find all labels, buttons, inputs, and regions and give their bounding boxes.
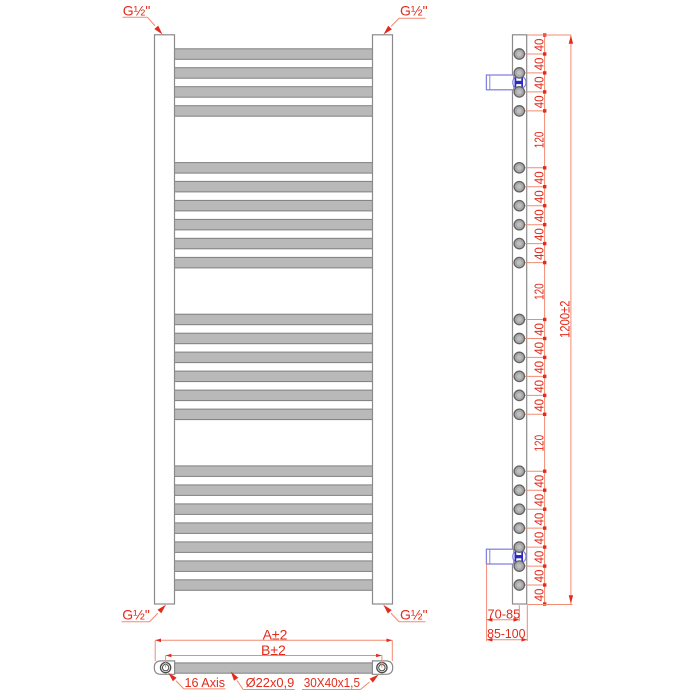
svg-text:120: 120 (532, 132, 547, 149)
svg-text:G½": G½" (122, 607, 150, 623)
svg-text:40: 40 (532, 323, 547, 336)
svg-text:40: 40 (532, 342, 547, 355)
svg-text:40: 40 (532, 190, 547, 203)
svg-text:40: 40 (532, 171, 547, 184)
svg-text:Ø22x0,9: Ø22x0,9 (246, 675, 295, 690)
svg-text:40: 40 (532, 247, 547, 260)
svg-text:40: 40 (532, 570, 547, 583)
svg-text:85-100: 85-100 (487, 626, 525, 641)
svg-text:40: 40 (532, 209, 547, 222)
svg-text:16 Axis: 16 Axis (185, 675, 226, 690)
svg-text:40: 40 (532, 228, 547, 241)
svg-text:B±2: B±2 (261, 642, 286, 658)
svg-text:40: 40 (532, 77, 547, 90)
svg-text:40: 40 (532, 39, 547, 52)
svg-text:40: 40 (532, 96, 547, 109)
svg-text:40: 40 (532, 475, 547, 488)
svg-text:40: 40 (532, 380, 547, 393)
svg-text:40: 40 (532, 399, 547, 412)
svg-text:120: 120 (532, 283, 547, 300)
svg-text:A±2: A±2 (263, 627, 288, 643)
svg-text:1200±2: 1200±2 (558, 301, 573, 339)
svg-text:40: 40 (532, 513, 547, 526)
svg-text:G½": G½" (400, 607, 428, 623)
svg-text:70-85: 70-85 (488, 606, 521, 621)
svg-text:120: 120 (532, 435, 547, 452)
svg-text:40: 40 (532, 58, 547, 71)
svg-text:G½": G½" (123, 3, 151, 19)
svg-text:40: 40 (532, 361, 547, 374)
svg-text:30X40x1,5: 30X40x1,5 (304, 675, 360, 690)
svg-text:40: 40 (532, 532, 547, 545)
svg-text:40: 40 (532, 494, 547, 507)
svg-text:40: 40 (532, 589, 547, 602)
svg-text:40: 40 (532, 551, 547, 564)
svg-text:G½": G½" (400, 3, 428, 19)
